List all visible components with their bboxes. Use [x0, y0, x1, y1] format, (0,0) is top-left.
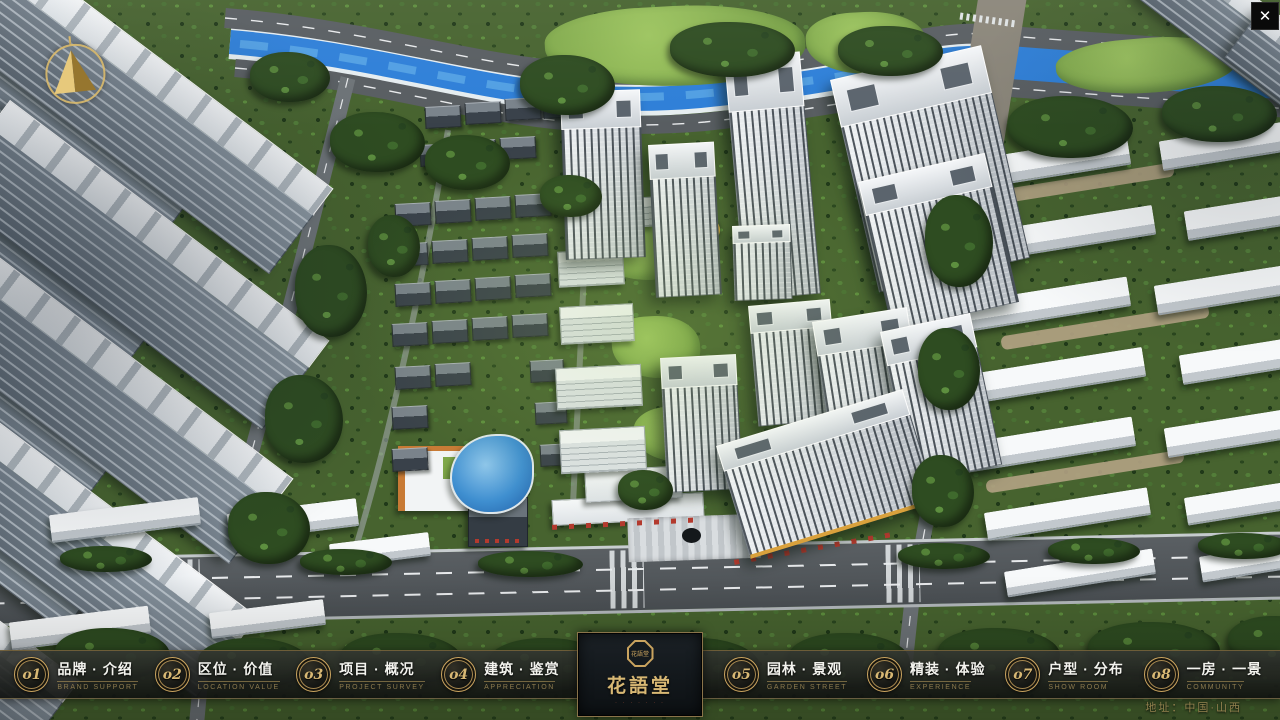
nav-item-label-zh: 户型 · 分布	[1048, 659, 1123, 679]
nav-item-labels: 项目 · 概况PROJECT SURVEY	[339, 659, 425, 691]
nav-item-label-en: GARDEN STREET	[767, 681, 847, 691]
tree-cluster	[618, 470, 673, 510]
nav-item-o3[interactable]: o3项目 · 概况PROJECT SURVEY	[294, 657, 427, 692]
nav-item-labels: 精装 · 体验EXPERIENCE	[910, 659, 985, 691]
navbar-right-group: o5园林 · 景观GARDEN STREETo6精装 · 体验EXPERIENC…	[706, 651, 1280, 698]
nav-item-o2[interactable]: o2区位 · 价值LOCATION VALUE	[153, 657, 282, 692]
nav-item-o7[interactable]: o7户型 · 分布SHOW ROOM	[1003, 657, 1125, 692]
nav-item-label-zh: 园林 · 景观	[767, 659, 842, 679]
nav-item-labels: 一房 · 一景COMMUNITY	[1187, 659, 1262, 691]
nav-item-label-en: BRAND SUPPORT	[57, 681, 138, 691]
nav-item-o4[interactable]: o4建筑 · 鉴赏APPRECIATION	[439, 657, 561, 692]
tree-cluster	[300, 549, 392, 575]
nav-item-badge: o4	[441, 657, 476, 692]
nav-item-badge: o8	[1144, 657, 1179, 692]
tree-cluster	[925, 195, 993, 287]
tree-cluster	[912, 455, 974, 527]
nav-item-badge: o7	[1005, 657, 1040, 692]
nav-item-label-zh: 项目 · 概况	[339, 659, 414, 679]
nav-item-o8[interactable]: o8一房 · 一景COMMUNITY	[1142, 657, 1264, 692]
nav-item-badge: o3	[296, 657, 331, 692]
tree-cluster	[898, 543, 990, 569]
tree-cluster	[1198, 533, 1280, 559]
tree-cluster	[295, 245, 367, 337]
tree-cluster	[330, 112, 425, 172]
nav-item-badge: o6	[867, 657, 902, 692]
tree-cluster	[228, 492, 310, 564]
nav-item-label-en: COMMUNITY	[1187, 681, 1245, 691]
nav-item-number: o2	[163, 667, 182, 683]
brand-seal-text: 花語堂	[631, 649, 649, 658]
navbar-left-group: o1品牌 · 介绍BRAND SUPPORTo2区位 · 价值LOCATION …	[0, 651, 574, 698]
sales-presentation-screen: ✕ o1品牌 · 介绍BRAND SUPPORTo2区位 · 价值LOCATIO…	[0, 0, 1280, 720]
nav-item-labels: 户型 · 分布SHOW ROOM	[1048, 659, 1123, 691]
tree-cluster	[60, 546, 152, 572]
nav-item-label-en: LOCATION VALUE	[198, 681, 280, 691]
brand-seal-icon: 花語堂	[627, 640, 654, 667]
tree-layer	[0, 0, 1280, 720]
compass-needle-shade	[71, 48, 96, 92]
tree-cluster	[478, 551, 583, 577]
nav-item-label-zh: 精装 · 体验	[910, 659, 985, 679]
nav-item-o1[interactable]: o1品牌 · 介绍BRAND SUPPORT	[12, 657, 140, 692]
masterplan-render	[0, 0, 1280, 720]
nav-item-o6[interactable]: o6精装 · 体验EXPERIENCE	[865, 657, 987, 692]
nav-item-label-zh: 区位 · 价值	[198, 659, 273, 679]
nav-item-badge: o1	[14, 657, 49, 692]
brand-logo-panel[interactable]: 花語堂 花語堂 · · · · · · ·	[577, 632, 703, 717]
nav-item-o5[interactable]: o5园林 · 景观GARDEN STREET	[722, 657, 849, 692]
brand-title: 花語堂	[607, 671, 673, 698]
nav-item-labels: 建筑 · 鉴赏APPRECIATION	[484, 659, 559, 691]
brand-subtitle: · · · · · · ·	[615, 700, 665, 706]
tree-cluster	[1162, 86, 1277, 142]
nav-item-label-zh: 建筑 · 鉴赏	[484, 659, 559, 679]
close-button[interactable]: ✕	[1251, 2, 1279, 30]
nav-item-number: o1	[22, 667, 41, 683]
nav-item-labels: 园林 · 景观GARDEN STREET	[767, 659, 847, 691]
project-address: 地址：中国·山西	[1145, 699, 1242, 715]
tree-cluster	[520, 55, 615, 115]
nav-item-label-en: APPRECIATION	[484, 681, 555, 691]
nav-item-labels: 区位 · 价值LOCATION VALUE	[198, 659, 280, 691]
tree-cluster	[368, 215, 420, 277]
nav-item-number: o7	[1013, 667, 1032, 683]
nav-item-number: o6	[875, 667, 894, 683]
nav-item-label-zh: 品牌 · 介绍	[57, 659, 132, 679]
nav-item-label-zh: 一房 · 一景	[1187, 659, 1262, 679]
tree-cluster	[1048, 538, 1140, 564]
nav-item-number: o8	[1152, 667, 1171, 683]
compass-north-indicator[interactable]	[38, 31, 109, 109]
nav-item-number: o3	[304, 667, 323, 683]
tree-cluster	[250, 52, 330, 102]
tree-cluster	[838, 26, 943, 76]
tree-cluster	[1008, 96, 1133, 158]
nav-item-labels: 品牌 · 介绍BRAND SUPPORT	[57, 659, 138, 691]
tree-cluster	[670, 22, 795, 77]
nav-item-number: o4	[449, 667, 468, 683]
tree-cluster	[918, 328, 980, 410]
nav-item-label-en: EXPERIENCE	[910, 681, 971, 691]
nav-item-badge: o2	[155, 657, 190, 692]
nav-item-badge: o5	[724, 657, 759, 692]
tree-cluster	[425, 135, 510, 190]
tree-cluster	[265, 375, 343, 463]
nav-item-label-en: PROJECT SURVEY	[339, 681, 425, 691]
nav-item-label-en: SHOW ROOM	[1048, 681, 1108, 691]
tree-cluster	[540, 175, 602, 217]
nav-item-number: o5	[732, 667, 751, 683]
